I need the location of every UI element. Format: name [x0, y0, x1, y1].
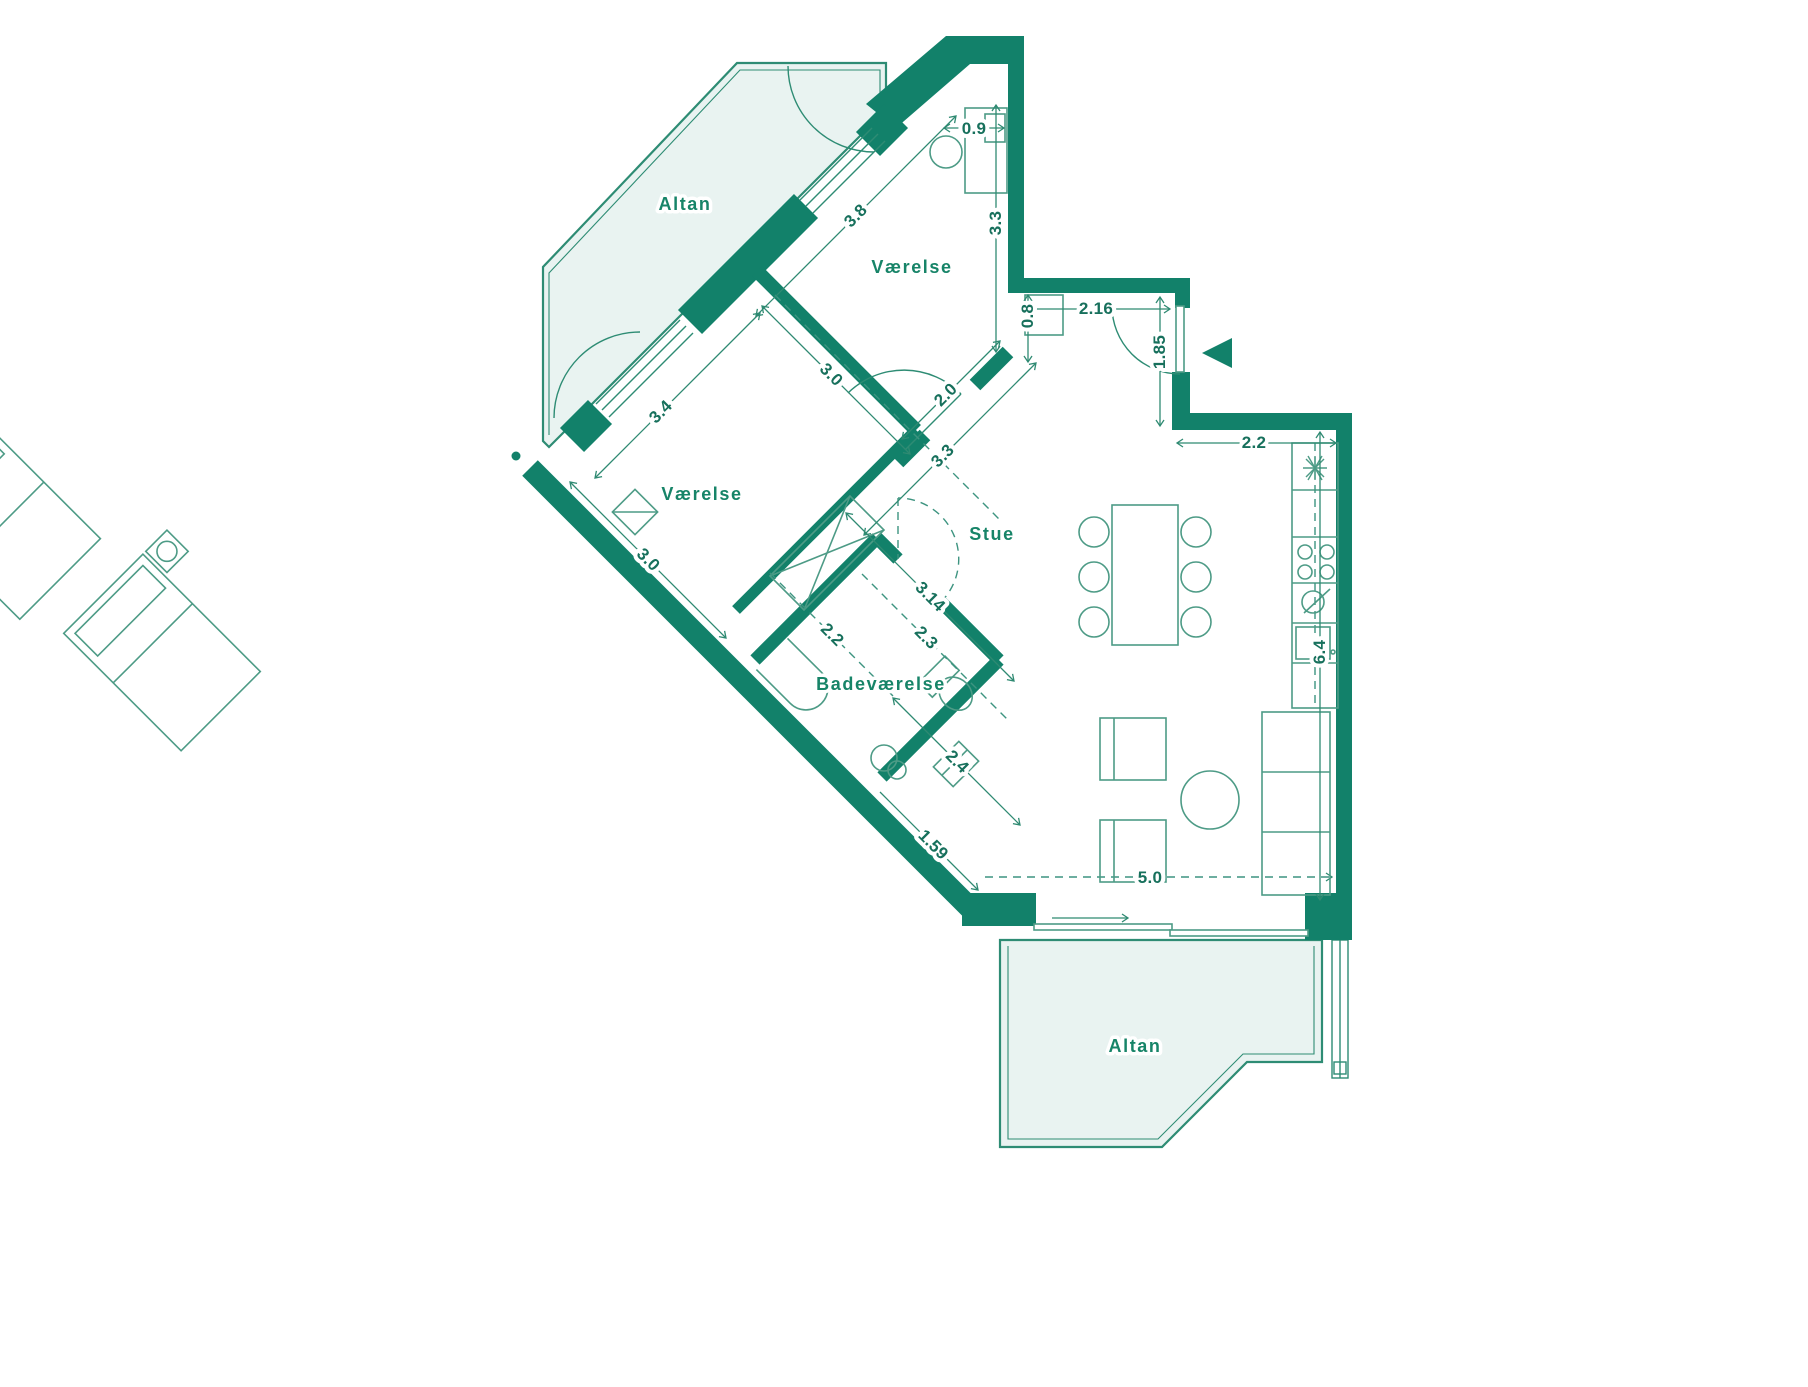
sliding-door: [1034, 918, 1308, 936]
floorplan-drawing: Altan Værelse Værelse Stue Badeværelse A…: [0, 0, 1808, 1387]
coffee-table: [1181, 771, 1239, 829]
room-label-bathroom: Badeværelse: [816, 674, 946, 694]
entry-door-leaf: [1176, 306, 1184, 372]
dim-0-9: 0.9: [962, 119, 987, 138]
sink-icon: [1303, 456, 1327, 480]
entrance-arrow-icon: [1202, 338, 1232, 368]
balcony-top: [543, 63, 886, 447]
floorplan-page: Altan Værelse Værelse Stue Badeværelse A…: [0, 0, 1808, 1387]
dim-3-3-a: 3.3: [986, 211, 1005, 236]
dim-6-4: 6.4: [1310, 639, 1329, 664]
dining-table: [1079, 505, 1211, 645]
dim-1-85: 1.85: [1150, 335, 1169, 369]
armchairs: [1100, 718, 1166, 882]
ceiling-line: [775, 295, 1002, 522]
balcony-bottom: [1000, 940, 1348, 1147]
room-label-balcony-top: Altan: [659, 194, 712, 214]
dim-2-2-kitchen: 2.2: [1242, 433, 1267, 452]
kitchen-counter: [1292, 443, 1338, 708]
room-label-bedroom-left: Værelse: [661, 484, 742, 504]
entry-door-arc: [1112, 306, 1180, 374]
dim-5-0: 5.0: [1138, 868, 1163, 887]
bed-top-bedroom: [64, 530, 285, 751]
dim-2-16: 2.16: [1079, 299, 1113, 318]
room-label-living: Stue: [969, 524, 1014, 544]
room-label-bedroom-top: Værelse: [871, 257, 952, 277]
room-label-balcony-bottom: Altan: [1109, 1036, 1162, 1056]
corner-dot: [512, 452, 521, 461]
dresser: [612, 489, 657, 534]
dim-0-8: 0.8: [1018, 304, 1037, 329]
desk-chair: [930, 136, 962, 168]
